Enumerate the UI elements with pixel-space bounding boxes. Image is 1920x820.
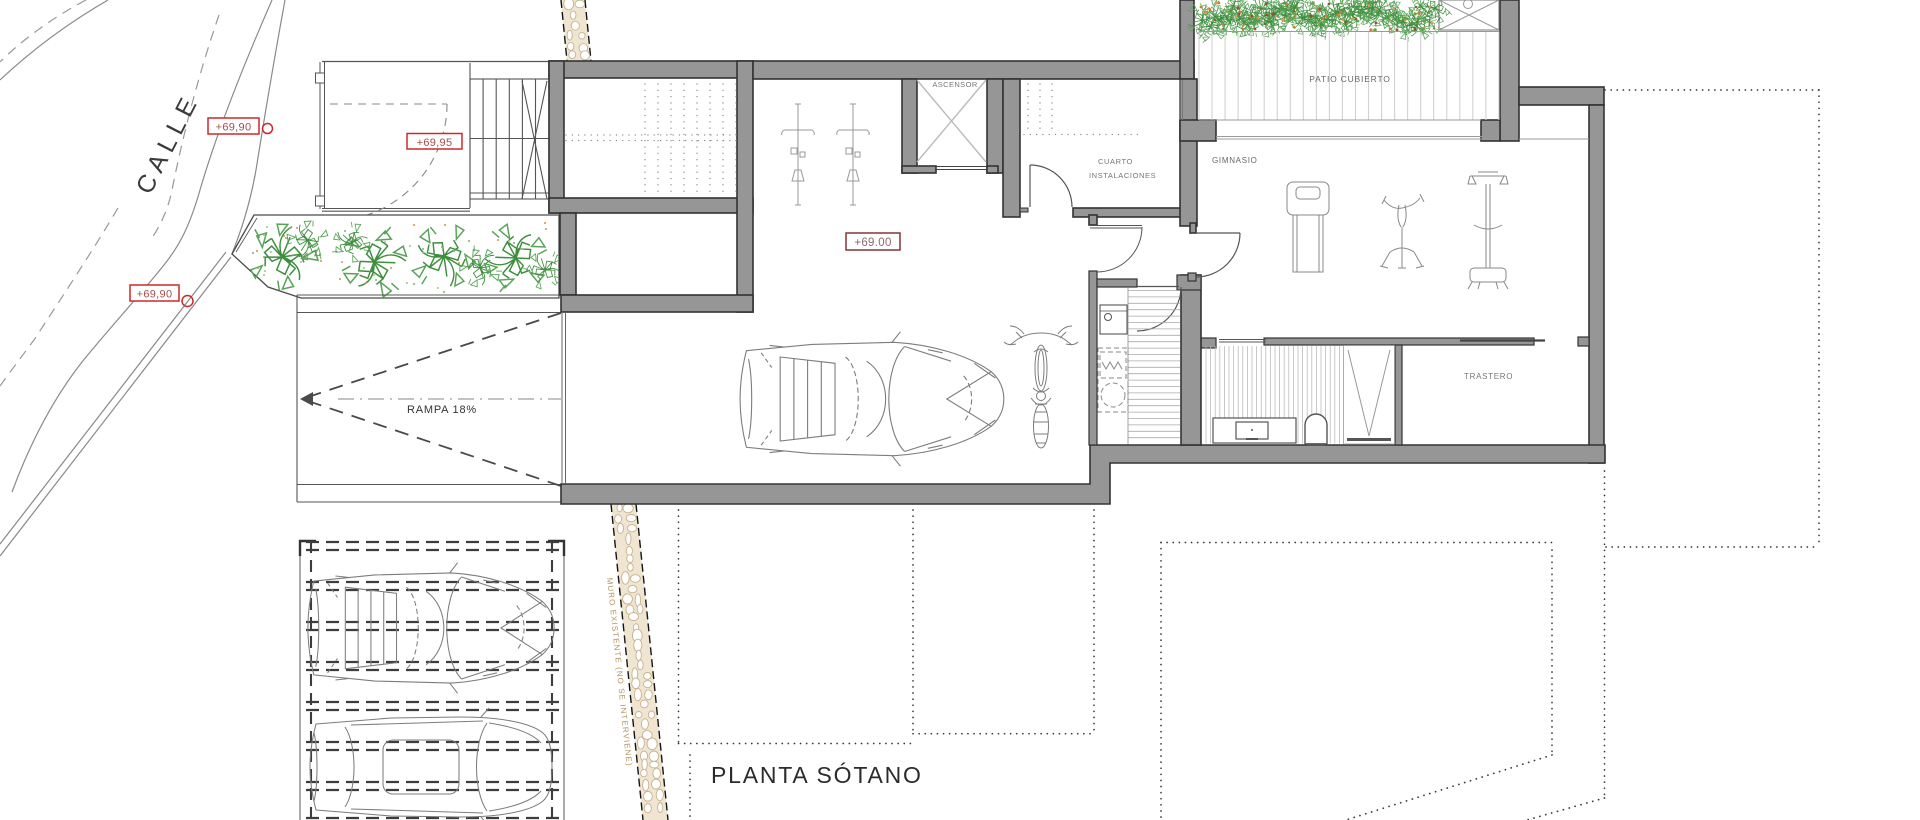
svg-text:GIMNASIO: GIMNASIO [1212, 156, 1258, 165]
svg-text:PLANTA SÓTANO: PLANTA SÓTANO [711, 762, 923, 788]
svg-text:ASCENSOR: ASCENSOR [932, 80, 977, 89]
svg-text:PATIO CUBIERTO: PATIO CUBIERTO [1309, 74, 1390, 84]
svg-text:+69,90: +69,90 [137, 289, 173, 301]
svg-text:+69,90: +69,90 [216, 122, 252, 134]
svg-text:+69,95: +69,95 [417, 137, 453, 149]
svg-text:TRASTERO: TRASTERO [1464, 372, 1513, 381]
svg-text:RAMPA 18%: RAMPA 18% [407, 404, 477, 416]
svg-text:INSTALACIONES: INSTALACIONES [1089, 171, 1156, 180]
svg-text:CUARTO: CUARTO [1098, 157, 1133, 166]
svg-text:+69.00: +69.00 [854, 237, 891, 249]
